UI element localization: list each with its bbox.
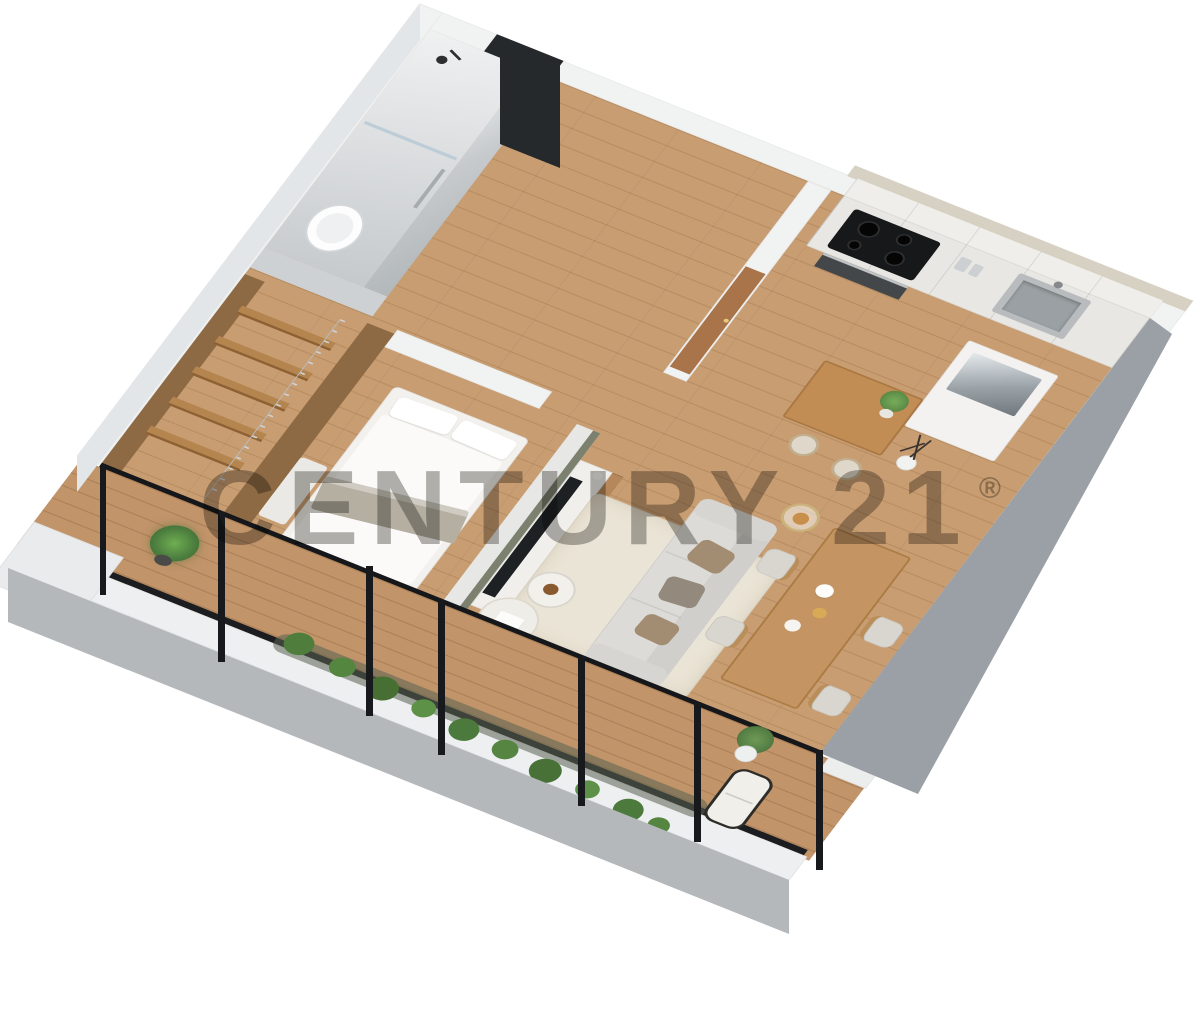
lounge-cushion-seam [725, 792, 753, 804]
burner [881, 248, 909, 268]
century21-watermark: CENTURY 21® [0, 448, 1200, 569]
coffee-table-tray [540, 582, 561, 597]
burner [893, 232, 915, 248]
watermark-brand-text: CENTURY 21 [199, 449, 973, 567]
burner [853, 218, 884, 240]
floorplan-screenshot: CENTURY 21® [0, 0, 1200, 1010]
registered-trademark-icon: ® [979, 472, 1001, 505]
burner [845, 238, 865, 252]
appliance-glass-top [946, 352, 1042, 416]
